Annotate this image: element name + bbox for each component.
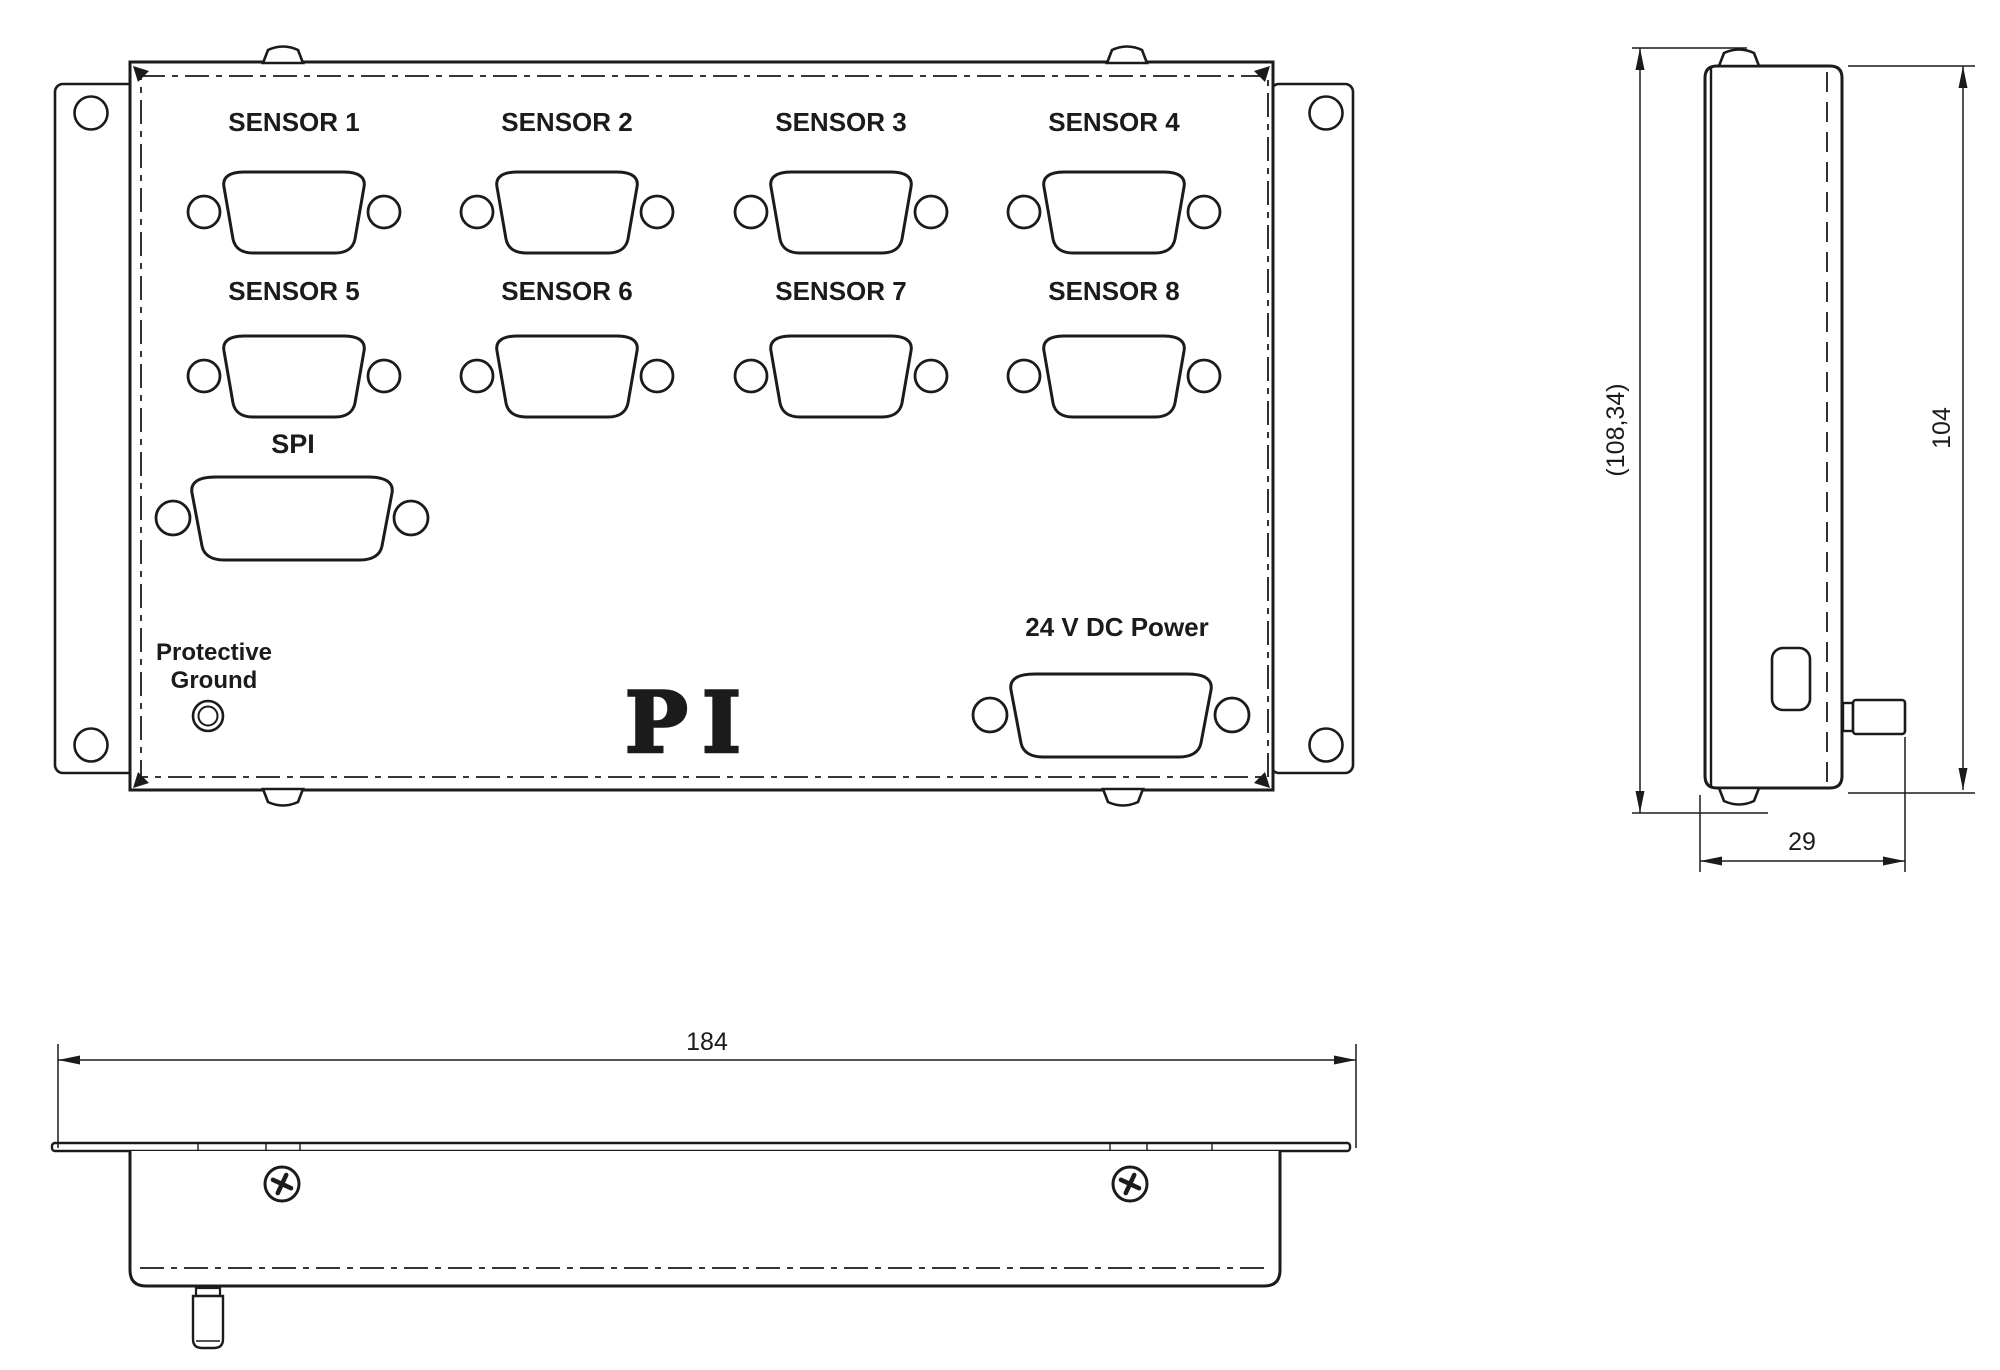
sensor-4-label: SENSOR 4 (1048, 107, 1180, 137)
foot-stud-icon (1107, 47, 1147, 64)
sensor-6-label: SENSOR 6 (501, 276, 633, 306)
foot-stud-icon (263, 47, 303, 64)
power-label: 24 V DC Power (1025, 612, 1209, 642)
protective-ground-label-line2: Ground (171, 667, 258, 694)
sensor-1-label: SENSOR 1 (228, 107, 360, 137)
right-mounting-flange (1271, 84, 1353, 773)
dimension-panel-height-value: 104 (1928, 407, 1956, 449)
technical-drawing-page: SENSOR 1 SENSOR 2 SENSOR 3 SENSOR 4 SENS… (0, 0, 2000, 1370)
foot-stud-icon (1103, 789, 1143, 806)
dimension-depth-value: 29 (1788, 828, 1816, 856)
mounting-plate-edge (52, 1143, 1350, 1151)
foot-stud-icon (1719, 50, 1759, 67)
dimension-overall-height-value: (108,34) (1602, 383, 1630, 476)
spi-label: SPI (271, 429, 315, 459)
mounting-hole (1310, 729, 1343, 762)
dimension-drawing: SENSOR 1 SENSOR 2 SENSOR 3 SENSOR 4 SENS… (0, 0, 2000, 1370)
front-view: SENSOR 1 SENSOR 2 SENSOR 3 SENSOR 4 SENS… (55, 47, 1353, 806)
sensor-8-label: SENSOR 8 (1048, 276, 1180, 306)
mounting-hole (75, 729, 108, 762)
sensor-7-label: SENSOR 7 (775, 276, 907, 306)
sensor-5-label: SENSOR 5 (228, 276, 360, 306)
sensor-3-label: SENSOR 3 (775, 107, 907, 137)
rubber-foot (193, 1288, 223, 1348)
foot-stud-icon (263, 789, 303, 806)
power-plug-side (1843, 700, 1905, 734)
sensor-2-label: SENSOR 2 (501, 107, 633, 137)
protective-ground-label-line1: Protective (156, 639, 272, 666)
ground-terminal-icon[interactable] (193, 701, 223, 731)
mounting-hole (75, 97, 108, 130)
phillips-screw-icon (265, 1167, 299, 1201)
mounting-hole (1310, 97, 1343, 130)
side-slot (1772, 648, 1810, 710)
foot-stud-icon (1719, 788, 1759, 805)
phillips-screw-icon (1113, 1167, 1147, 1201)
left-mounting-flange (55, 84, 137, 773)
enclosure-body (130, 1151, 1280, 1286)
pi-logo: PI (625, 673, 755, 772)
dimension-overall-width-value: 184 (686, 1028, 728, 1056)
